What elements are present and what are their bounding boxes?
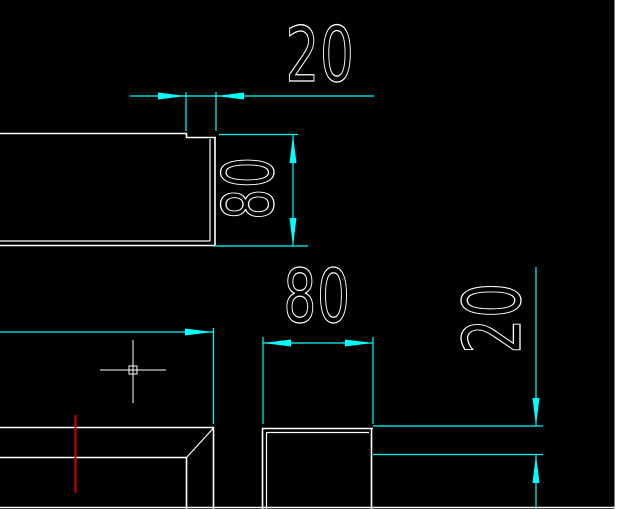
dimension-right-height-20: 20 [373,267,543,509]
arrowhead-right-icon [185,329,213,336]
arrowhead-left-icon [263,340,291,347]
dimension-text: 20 [448,282,540,354]
drawing-canvas[interactable]: 20 80 80 [0,0,640,509]
arrowhead-left-icon [216,93,244,100]
arrowhead-down-icon [290,218,297,246]
chamfer-line [187,428,214,457]
arrowhead-up-icon [290,135,297,163]
arrowhead-down-icon [533,398,540,426]
right-panel-edge [615,0,640,509]
crosshair-cursor [100,340,166,403]
dimension-lower-left-leader [0,328,214,424]
dimension-text: 80 [283,255,350,341]
arrowhead-right-icon [158,93,186,100]
dimension-lower-width-80: 80 [263,255,373,424]
arrowhead-right-icon [345,340,373,347]
dimension-top-width-20: 20 [130,11,374,131]
dimension-plate-height-80: 80 [209,135,308,247]
dimension-text: 20 [285,11,354,99]
dimension-text: 80 [209,156,290,220]
lower-right-plate-geometry [262,428,373,509]
upper-plate-geometry [0,133,216,246]
tee-joint-geometry [0,427,214,509]
arrowhead-up-icon [533,455,540,483]
cad-viewport: 20 80 80 [0,0,640,509]
